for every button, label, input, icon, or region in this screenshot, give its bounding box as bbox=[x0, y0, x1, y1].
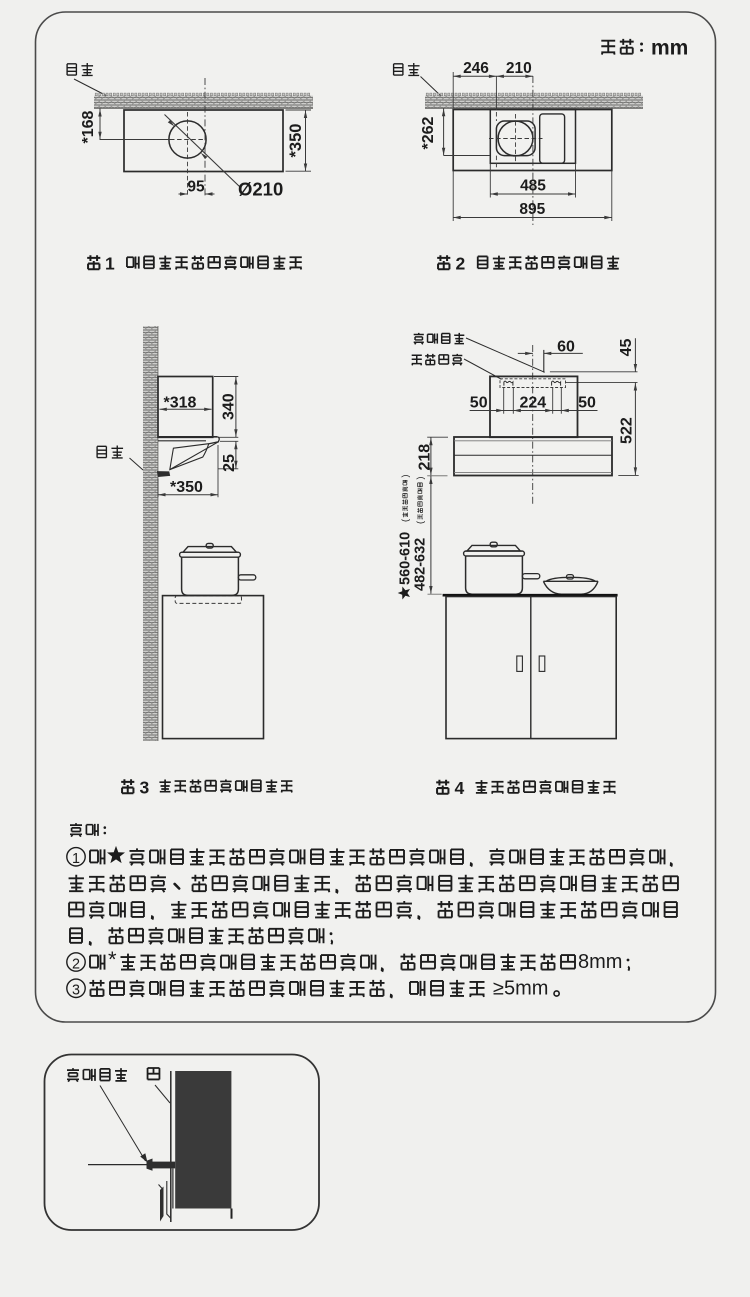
svg-text:≥5mm: ≥5mm bbox=[493, 977, 548, 999]
svg-text:1: 1 bbox=[105, 254, 115, 274]
svg-text:560-610: 560-610 bbox=[398, 532, 414, 585]
svg-text:(: ( bbox=[415, 521, 425, 524]
svg-text:210: 210 bbox=[506, 60, 532, 77]
svg-text:Ø210: Ø210 bbox=[238, 179, 283, 200]
svg-text:482-632: 482-632 bbox=[413, 538, 429, 591]
svg-text:*: * bbox=[108, 947, 117, 972]
svg-text:2: 2 bbox=[72, 956, 80, 972]
svg-text:mm: mm bbox=[651, 37, 688, 60]
svg-text:50: 50 bbox=[470, 395, 488, 412]
svg-text:25: 25 bbox=[221, 454, 238, 472]
svg-text:2: 2 bbox=[456, 254, 466, 274]
svg-text:60: 60 bbox=[557, 339, 575, 356]
svg-text:3: 3 bbox=[140, 778, 150, 798]
svg-text:45: 45 bbox=[618, 339, 635, 357]
svg-text:(: ( bbox=[400, 519, 410, 522]
svg-text:340: 340 bbox=[221, 393, 238, 420]
svg-text:50: 50 bbox=[578, 395, 596, 412]
svg-text:*262: *262 bbox=[420, 116, 437, 149]
svg-text:*168: *168 bbox=[80, 110, 97, 143]
svg-text:895: 895 bbox=[519, 201, 545, 218]
svg-text:8mm: 8mm bbox=[578, 951, 622, 973]
svg-text:): ) bbox=[415, 477, 425, 480]
svg-text:522: 522 bbox=[619, 417, 636, 444]
svg-text:*318: *318 bbox=[164, 395, 197, 412]
svg-text:95: 95 bbox=[187, 179, 205, 196]
svg-text:): ) bbox=[400, 475, 410, 478]
svg-text:*350: *350 bbox=[170, 479, 203, 496]
svg-text:485: 485 bbox=[520, 178, 546, 195]
svg-text:*350: *350 bbox=[287, 124, 305, 158]
svg-text:1: 1 bbox=[72, 851, 80, 867]
svg-text:4: 4 bbox=[455, 778, 465, 798]
svg-text:3: 3 bbox=[72, 983, 80, 999]
svg-text:218: 218 bbox=[417, 444, 434, 471]
svg-text:246: 246 bbox=[463, 60, 489, 77]
svg-text:224: 224 bbox=[519, 395, 546, 412]
